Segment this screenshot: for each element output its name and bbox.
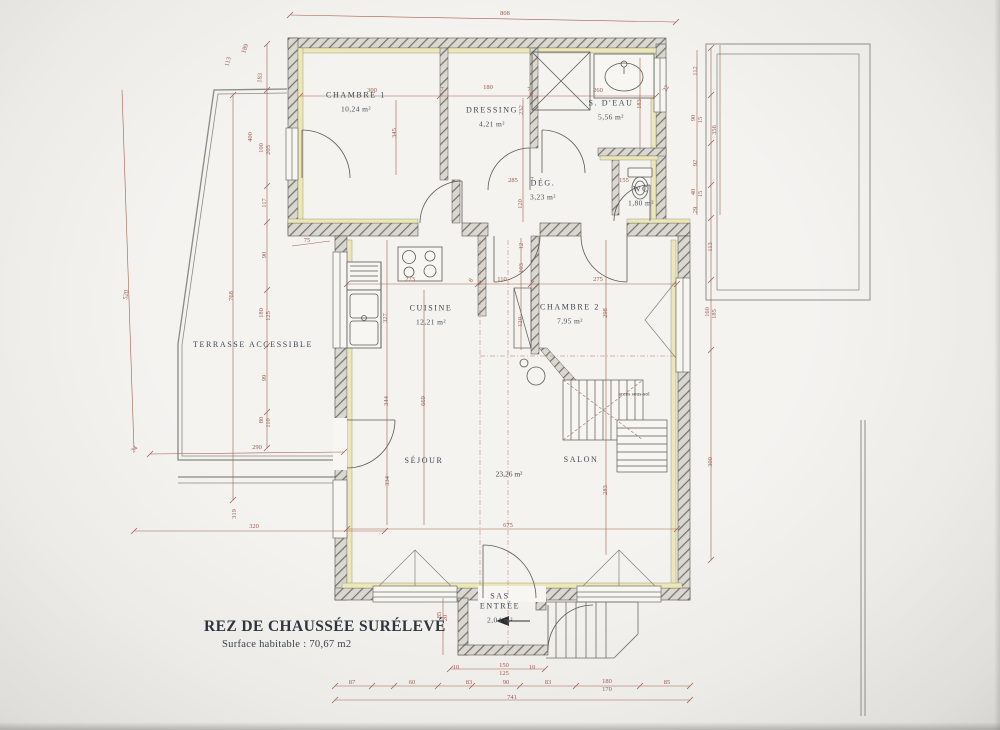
exterior-entry-steps (546, 602, 638, 658)
scan-shadow (994, 0, 1000, 730)
wc-insulation (600, 156, 658, 160)
hall-closet (514, 288, 531, 348)
plan-subtitle: Surface habitable : 70,67 m2 (222, 639, 446, 650)
interior-partitions (440, 48, 666, 386)
kitchen-sink-icon (347, 262, 381, 348)
plan-title: REZ DE CHAUSSÉE SURÉLEVÉ (204, 618, 446, 636)
entry-arrow-icon (496, 616, 530, 626)
washbasin-icon (594, 54, 654, 98)
scan-shadow (0, 722, 1000, 730)
property-boundary-lines (706, 44, 870, 716)
floor-plan-drawing (0, 0, 1000, 730)
terrace-railing (178, 89, 346, 483)
interior-staircase (563, 380, 667, 472)
kitchen-stove-icon (398, 247, 442, 281)
scanned-floor-plan-paper: CHAMBRE 110,24 m²DRESSING4,21 m²S. D'EAU… (0, 0, 1000, 730)
shower-icon (532, 52, 590, 110)
title-block: REZ DE CHAUSSÉE SURÉLEVÉ Surface habitab… (204, 618, 446, 650)
wood-stove-icon (520, 359, 545, 385)
toilet-icon (628, 168, 652, 199)
